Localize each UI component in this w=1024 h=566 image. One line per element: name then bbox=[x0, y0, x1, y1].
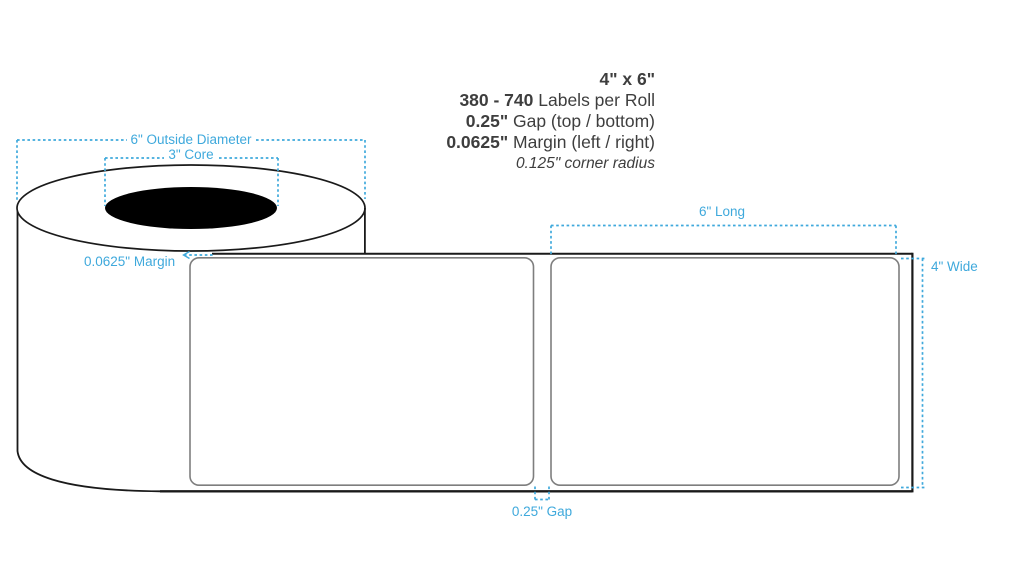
label-1 bbox=[190, 258, 534, 485]
label-2 bbox=[551, 258, 899, 485]
margin-label: 0.0625" Margin bbox=[84, 255, 175, 269]
spec-labels-per-roll: 380 - 740 Labels per Roll bbox=[446, 90, 655, 111]
core-label: 3" Core bbox=[168, 148, 213, 162]
wide-label: 4" Wide bbox=[931, 260, 978, 274]
roll-core bbox=[105, 187, 277, 229]
spec-block: 4" x 6" 380 - 740 Labels per Roll 0.25" … bbox=[446, 69, 655, 174]
spec-gap: 0.25" Gap (top / bottom) bbox=[446, 111, 655, 132]
dim-wide bbox=[901, 259, 927, 488]
spec-size: 4" x 6" bbox=[446, 69, 655, 90]
spec-corner-radius: 0.125" corner radius bbox=[446, 153, 655, 174]
dim-gap bbox=[535, 487, 549, 500]
dim-long bbox=[551, 226, 896, 257]
gap-label: 0.25" Gap bbox=[512, 505, 572, 519]
outside-diameter-label: 6" Outside Diameter bbox=[130, 133, 251, 147]
label-roll-diagram: 4" x 6" 380 - 740 Labels per Roll 0.25" … bbox=[0, 0, 1024, 566]
long-label: 6" Long bbox=[699, 205, 745, 219]
roll-body-outline bbox=[18, 208, 161, 491]
spec-margin: 0.0625" Margin (left / right) bbox=[446, 132, 655, 153]
